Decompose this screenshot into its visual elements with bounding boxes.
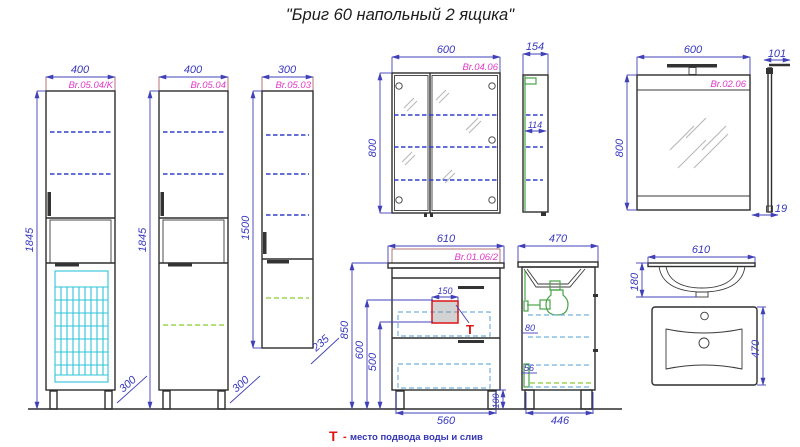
- hinge: [396, 197, 402, 203]
- dim-height: 1845: [24, 227, 36, 252]
- dim-width: 600: [684, 44, 703, 56]
- dim-bowl-depth: 180: [629, 272, 641, 291]
- legend-dash: -: [343, 431, 347, 443]
- drain-hole: [699, 338, 709, 348]
- laundry-basket: [55, 271, 108, 382]
- cabinet-body: [159, 91, 228, 390]
- legend: Т - место подвода воды и слив: [329, 428, 483, 444]
- hinge: [489, 197, 495, 203]
- open-niche: [50, 220, 111, 263]
- dim-clearance-top: 80: [525, 323, 535, 333]
- dim-inner-depth: 114: [528, 120, 542, 130]
- page-title: "Бриг 60 напольный 2 ящика": [286, 6, 515, 24]
- dim-width: 600: [437, 44, 456, 56]
- dim-side-depth: 154: [526, 41, 544, 53]
- faucet-hole: [701, 312, 709, 320]
- legend-text: место подвода воды и слив: [350, 432, 483, 443]
- dim-width: 400: [184, 64, 203, 76]
- vanity-side: 470 80 56 446: [518, 233, 598, 427]
- door-handle: [48, 192, 52, 216]
- dim-width: 300: [278, 64, 297, 76]
- model-label: Br.01.06/2: [455, 252, 499, 263]
- dim-height: 1500: [240, 215, 252, 240]
- model-label: Br.05.03: [275, 80, 311, 91]
- leg: [396, 391, 404, 409]
- column-cabinet-front: 300 Br.05.03 1500 235: [240, 64, 339, 364]
- dim-clearance-bottom: 56: [524, 363, 534, 373]
- dim-depth: 470: [549, 233, 568, 245]
- lamp-stem: [689, 68, 696, 75]
- dim-base-width: 560: [437, 415, 456, 427]
- door-handle: [263, 232, 267, 254]
- countertop: [518, 262, 598, 267]
- dim-supply-bottom: 500: [367, 352, 379, 371]
- drawing-canvas: "Бриг 60 напольный 2 ящика" 400 Br.05.04…: [0, 0, 800, 447]
- legend-symbol: Т: [329, 428, 338, 444]
- open-niche: [163, 220, 224, 263]
- drawer-handle: [458, 286, 484, 289]
- side-body: [523, 75, 548, 212]
- mirror-body: [637, 75, 750, 210]
- vanity-front: 610 Br.01.06/2 150 Т 100 560 850 600: [339, 233, 506, 427]
- dim-top-depth: 470: [750, 339, 762, 358]
- drain-stub: [696, 292, 708, 297]
- hinge: [489, 83, 495, 89]
- supply-cutout: [432, 301, 458, 323]
- model-label: Br.02.06: [710, 79, 746, 90]
- leg: [50, 391, 57, 409]
- dim-supply-top: 600: [354, 340, 366, 359]
- sink-front: 610 180: [629, 244, 755, 297]
- mirror-glints: [402, 90, 481, 183]
- sink-top: 470: [652, 307, 766, 385]
- lamp: [667, 64, 717, 68]
- door-handle: [55, 263, 79, 267]
- mirror-front: 600 Br.02.06 800: [614, 44, 750, 210]
- dim-width: 610: [692, 244, 711, 256]
- door-handle: [168, 263, 192, 267]
- countertop: [388, 263, 504, 268]
- cabinet-body: [262, 91, 313, 348]
- bowl-outline: [666, 329, 742, 369]
- dim-lamp-depth: 101: [768, 48, 786, 60]
- mirror-side: 101 19: [752, 48, 790, 215]
- door-handle: [267, 260, 289, 264]
- dim-total-height: 850: [339, 320, 351, 339]
- leg: [105, 391, 112, 409]
- mirror-glints: [670, 118, 728, 168]
- drawer-handle: [458, 340, 484, 343]
- leg: [163, 391, 170, 409]
- technical-drawing-sheet: "Бриг 60 напольный 2 ящика" 400 Br.05.04…: [0, 0, 800, 447]
- dim-height: 1845: [137, 227, 149, 252]
- mirror-cabinet-side: 154 114: [523, 41, 548, 216]
- dim-depth: 300: [230, 373, 252, 395]
- model-label: Br.05.04/K: [68, 80, 113, 91]
- water-supply-marker: Т: [466, 322, 474, 337]
- mirror-cabinet-front: 600 Br.04.06 800: [367, 44, 500, 217]
- drawer-box-dashed: [398, 364, 490, 388]
- door-handle: [161, 192, 165, 216]
- mirror-profile: [768, 68, 772, 212]
- dim-cutout: 150: [437, 286, 452, 296]
- dim-width: 610: [437, 233, 456, 245]
- sink-outline: [652, 307, 757, 385]
- model-label: Br.05.04: [190, 80, 226, 91]
- tall-cabinet-k-front: 400 Br.05.04/K 1845 300: [24, 64, 147, 409]
- dim-base-depth: 446: [551, 415, 570, 427]
- cabinet-body: [46, 91, 115, 390]
- dim-height: 800: [367, 138, 379, 157]
- sink-rim: [648, 263, 755, 267]
- dim-width: 400: [71, 64, 90, 76]
- leg: [581, 390, 592, 409]
- leg: [218, 391, 225, 409]
- model-label: Br.04.06: [462, 62, 498, 73]
- cabinet-body: [392, 73, 500, 213]
- dim-height: 800: [614, 138, 626, 157]
- dim-depth: 300: [117, 373, 139, 395]
- hinge: [396, 83, 402, 89]
- dim-thickness: 19: [775, 203, 787, 215]
- hinge: [489, 137, 495, 143]
